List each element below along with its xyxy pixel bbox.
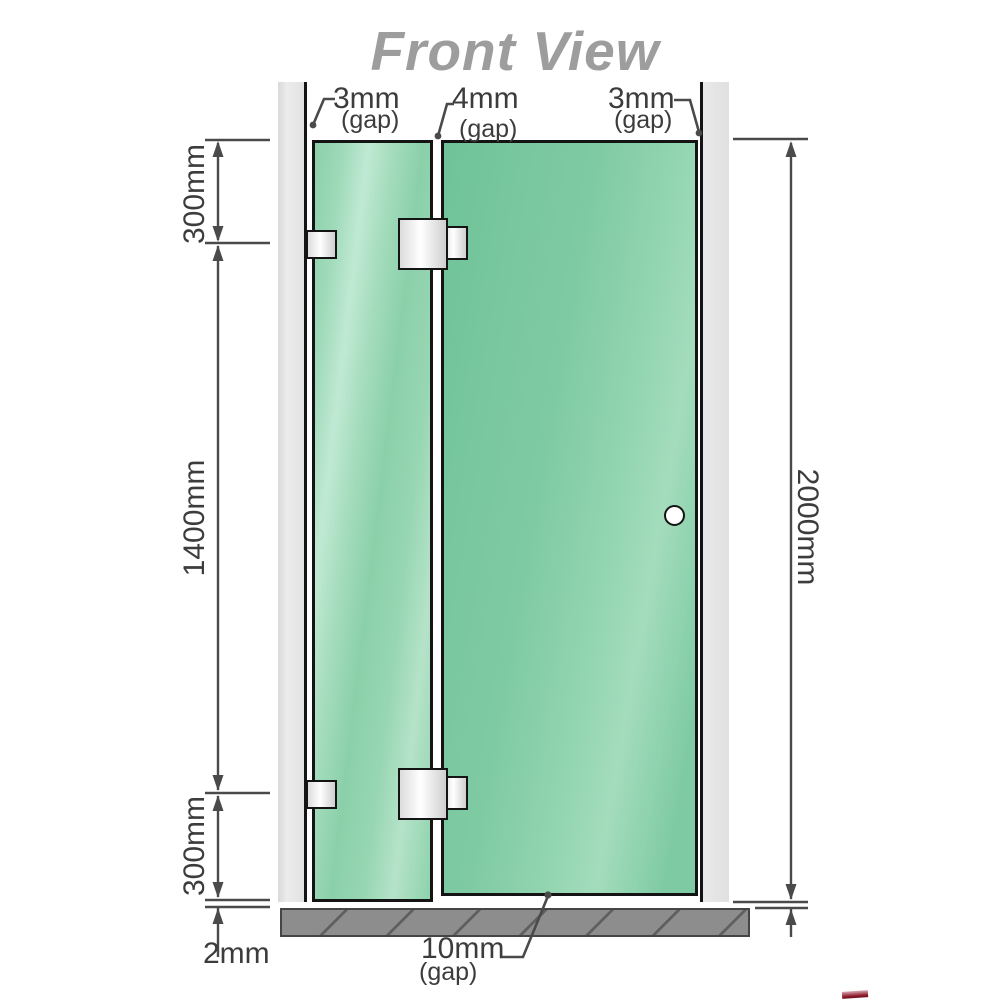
door-glass-panel: [441, 140, 698, 896]
dimension-label-overall-height: 2000mm: [792, 469, 822, 586]
hinge-top-plate: [398, 218, 448, 270]
gap-suffix-top-middle: (gap): [459, 117, 517, 142]
door-knob: [664, 505, 685, 526]
wall-bracket-bottom: [306, 780, 337, 809]
gap-suffix-bottom: (gap): [419, 960, 477, 985]
wall-bracket-top: [306, 230, 337, 259]
gap-suffix-top-left: (gap): [341, 108, 399, 133]
floor-base: [280, 908, 750, 937]
dimension-label-left-top: 300mm: [180, 144, 210, 244]
logo-fragment: [842, 990, 868, 999]
front-view-diagram: Front View: [0, 0, 1000, 1000]
gap-label-top-middle: 4mm: [452, 84, 519, 114]
diagram-title: Front View: [350, 24, 680, 79]
dimension-label-left-bottom: 300mm: [180, 796, 210, 896]
wall-channel-right: [700, 82, 729, 902]
dimension-label-left-middle: 1400mm: [180, 460, 210, 577]
bottom-clearance-label: 2mm: [203, 939, 270, 969]
hinge-bottom-plate: [398, 768, 448, 820]
wall-channel-left: [278, 82, 307, 902]
gap-suffix-top-right: (gap): [614, 108, 672, 133]
